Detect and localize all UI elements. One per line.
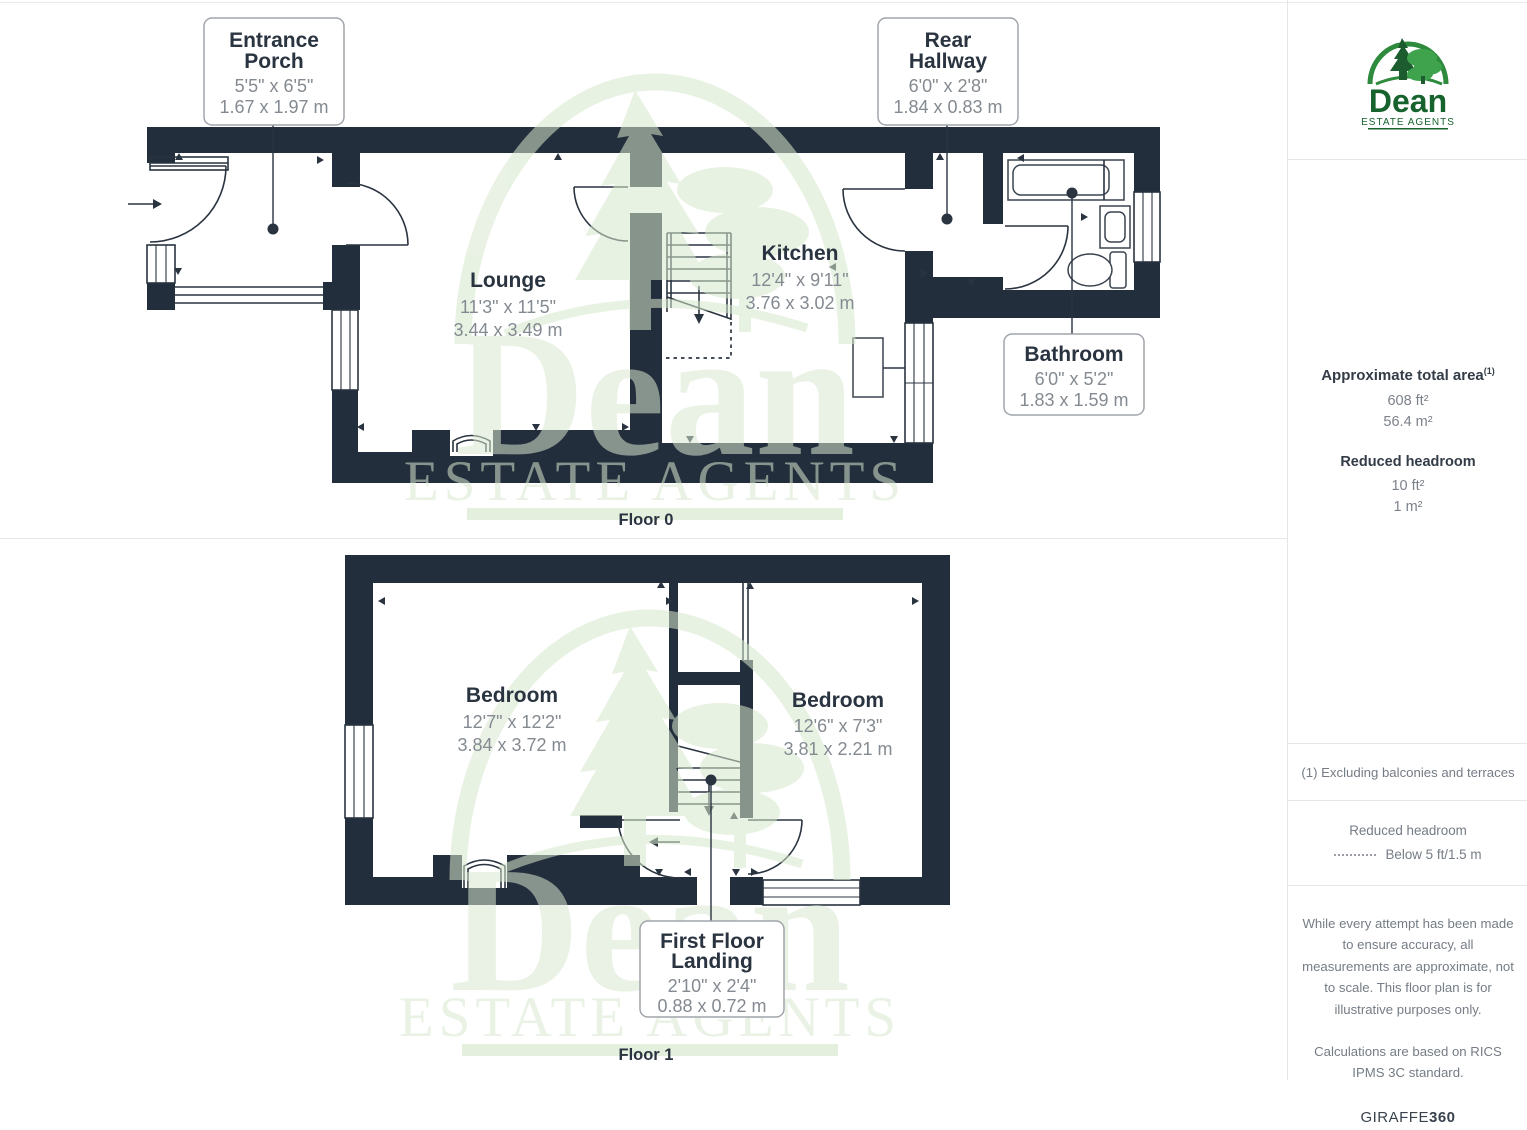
first-floor-landing-label-box: First Floor Landing 2'10" x 2'4" 0.88 x … (640, 921, 784, 1017)
disclaimer: While every attempt has been made to ens… (1288, 885, 1527, 1080)
info-sidebar: Dean ESTATE AGENTS Approximate total are… (1287, 0, 1527, 1080)
porch-steps (150, 157, 323, 303)
room-imperial: 12'4" x 9'11" (751, 270, 848, 290)
dean-logo-icon: Dean ESTATE AGENTS (1360, 32, 1456, 132)
bedroom-left-label: Bedroom 12'7" x 12'2" 3.84 x 3.72 m (457, 684, 566, 755)
rear-hallway-label-box: Rear Hallway 6'0" x 2'8" 1.84 x 0.83 m (878, 18, 1018, 125)
floorplan-drawing: Dean ESTATE AGENTS Lounge 11'3" x 11'5" … (0, 0, 1287, 1080)
box-title-line2: Landing (671, 950, 753, 973)
box-metric: 0.88 x 0.72 m (657, 996, 766, 1016)
sink-icon (1100, 206, 1130, 248)
box-title-line2: Hallway (909, 50, 988, 73)
area-summary: Approximate total area(1) 608 ft² 56.4 m… (1288, 366, 1527, 520)
bathroom-label-box: Bathroom 6'0" x 5'2" 1.83 x 1.59 m (1004, 334, 1144, 415)
toilet-icon (1068, 252, 1126, 288)
room-imperial: 12'7" x 12'2" (463, 712, 562, 732)
box-metric: 1.84 x 0.83 m (893, 97, 1002, 117)
footnote-marker: (1) (1484, 366, 1495, 376)
kitchen-unit (853, 338, 905, 397)
room-metric: 3.44 x 3.49 m (453, 320, 562, 340)
room-metric: 3.76 x 3.02 m (745, 293, 854, 313)
room-metric: 3.81 x 2.21 m (783, 739, 892, 759)
lounge-label: Lounge 11'3" x 11'5" 3.44 x 3.49 m (453, 269, 562, 340)
area-footnote: (1) Excluding balconies and terraces (1288, 743, 1527, 800)
room-title: Lounge (470, 269, 546, 292)
box-imperial: 6'0" x 2'8" (909, 76, 988, 96)
dotted-line-icon (1334, 854, 1376, 856)
reduced-headroom-legend: Reduced headroom Below 5 ft/1.5 m (1288, 800, 1527, 885)
room-title: Bedroom (792, 689, 884, 712)
agency-logo: Dean ESTATE AGENTS (1288, 0, 1527, 160)
box-title-line1: Entrance (229, 29, 319, 52)
room-title: Kitchen (761, 242, 838, 265)
total-area-imperial: 608 ft² (1288, 393, 1527, 409)
brand-suffix: 360 (1429, 1109, 1456, 1126)
leader-dot (1067, 188, 1078, 199)
floor-section-divider (0, 538, 1287, 539)
box-title-line1: Rear (925, 29, 972, 52)
box-title-line2: Porch (244, 50, 304, 73)
kitchen-label: Kitchen 12'4" x 9'11" 3.76 x 3.02 m (745, 242, 854, 313)
leader-dot (706, 775, 717, 786)
watermark-tagline: ESTATE AGENTS (404, 450, 906, 513)
reduced-headroom-metric: 1 m² (1288, 499, 1527, 515)
box-imperial: 2'10" x 2'4" (668, 976, 757, 996)
total-area-title: Approximate total area(1) (1288, 366, 1527, 384)
bathtub-icon (1008, 160, 1124, 200)
box-metric: 1.67 x 1.97 m (219, 97, 328, 117)
disclaimer-accuracy: While every attempt has been made to ens… (1302, 913, 1514, 1020)
floor1-caption: Floor 1 (618, 1046, 673, 1064)
floor0-caption: Floor 0 (618, 511, 673, 529)
room-imperial: 11'3" x 11'5" (460, 297, 556, 317)
entry-arrow-icon (128, 199, 162, 209)
leader-dot (942, 214, 953, 225)
room-title: Bedroom (466, 684, 558, 707)
bedroom-right-label: Bedroom 12'6" x 7'3" 3.81 x 2.21 m (783, 689, 892, 759)
brand-name: GIRAFFE (1360, 1109, 1429, 1126)
legend-title: Reduced headroom (1288, 823, 1527, 838)
reduced-headroom-title: Reduced headroom (1288, 454, 1527, 470)
logo-name: Dean (1369, 83, 1447, 119)
box-title: Bathroom (1024, 343, 1123, 366)
reduced-headroom-imperial: 10 ft² (1288, 478, 1527, 494)
box-imperial: 5'5" x 6'5" (235, 76, 314, 96)
disclaimer-standard: Calculations are based on RICS IPMS 3C s… (1302, 1041, 1514, 1084)
box-imperial: 6'0" x 5'2" (1035, 369, 1114, 389)
box-metric: 1.83 x 1.59 m (1019, 390, 1128, 410)
room-imperial: 12'6" x 7'3" (794, 716, 883, 736)
total-area-metric: 56.4 m² (1288, 414, 1527, 430)
footnote-text: (1) Excluding balconies and terraces (1301, 765, 1514, 780)
logo-tagline: ESTATE AGENTS (1361, 117, 1455, 128)
leader-dot (268, 224, 279, 235)
entrance-porch-label-box: Entrance Porch 5'5" x 6'5" 1.67 x 1.97 m (204, 18, 344, 125)
floorplan-canvas: Dean ESTATE AGENTS Lounge 11'3" x 11'5" … (0, 0, 1287, 1080)
legend-item: Below 5 ft/1.5 m (1385, 847, 1481, 862)
giraffe360-brand: GIRAFFE360 (1288, 1106, 1527, 1130)
room-metric: 3.84 x 3.72 m (457, 735, 566, 755)
